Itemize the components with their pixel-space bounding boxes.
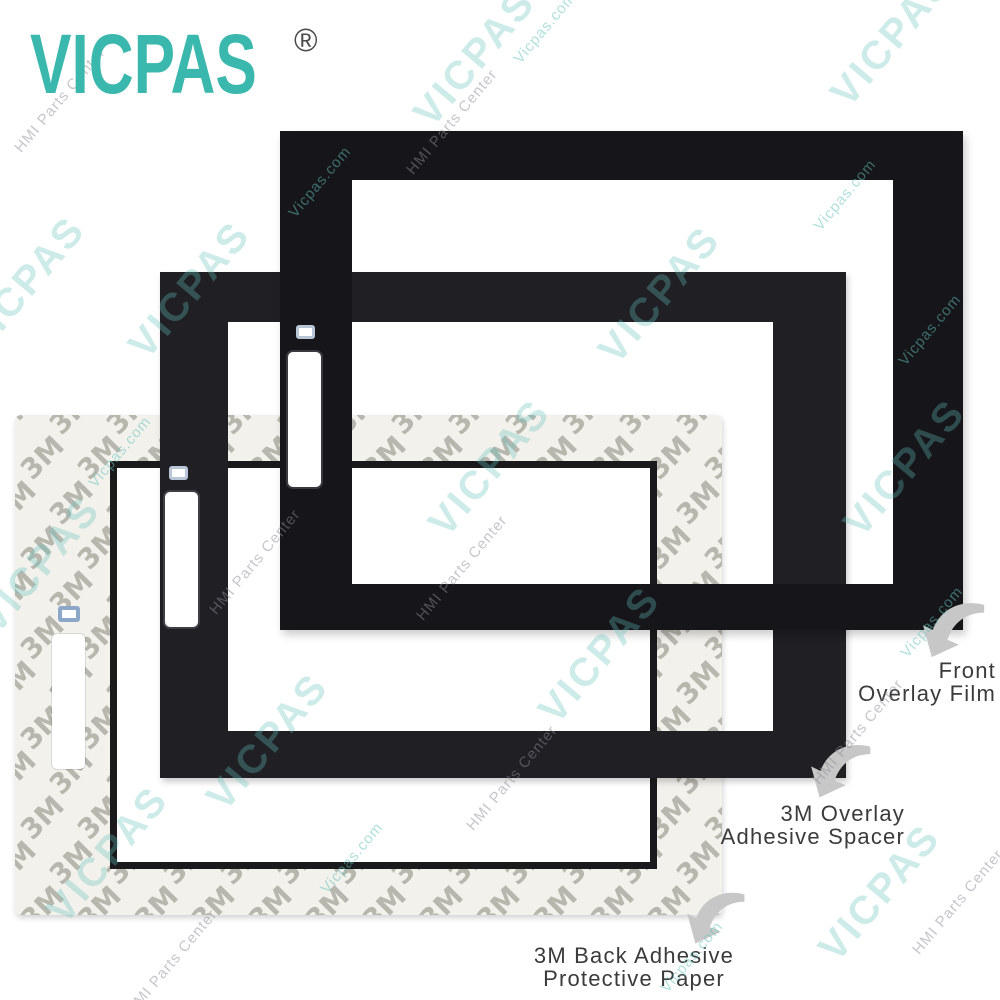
3m-pattern-glyph: 3M [16, 431, 69, 484]
protective-paper-label-line2: Protective Paper [534, 967, 734, 990]
paper-led-window-cutout-icon [58, 606, 80, 622]
front-overlay-film-layer [280, 131, 963, 630]
watermark-brand-text: VICPAS [0, 208, 95, 363]
protective-paper-label-line1: 3M Back Adhesive [534, 944, 734, 967]
film-led-window-cutout-icon [296, 325, 315, 339]
protective-paper-label: 3M Back Adhesive Protective Paper [534, 944, 734, 990]
3m-pattern-glyph: 3M [16, 521, 69, 574]
front-film-arrow-icon [922, 599, 992, 663]
adhesive-spacer-label: 3M Overlay Adhesive Spacer [721, 802, 905, 848]
watermark-brand-text: VICPAS [405, 0, 545, 135]
adhesive-spacer-label-line1: 3M Overlay [721, 802, 905, 825]
paper-function-slot-cutout [52, 634, 85, 769]
front-film-label-line2: Overlay Film [858, 682, 996, 705]
3m-pattern-glyph: 3M [672, 836, 722, 889]
spacer-led-window-cutout-icon [169, 466, 188, 480]
spacer-function-slot-cutout [165, 492, 198, 627]
film-function-slot-cutout [288, 352, 321, 487]
3m-pattern-glyph: 3M [16, 791, 69, 844]
front-film-label-line1: Front [858, 659, 996, 682]
watermark-site-text: Vicpas.com [510, 0, 579, 67]
watermark-center-text: HMI Parts Center [123, 906, 221, 1000]
vicpas-logo-text: VICPAS [30, 22, 257, 106]
3m-pattern-glyph: 3M [45, 476, 98, 529]
watermark-center-text: HMI Parts Center [909, 846, 1000, 958]
3m-pattern-glyph: 3M [45, 836, 98, 889]
3m-pattern-glyph: 3M [15, 415, 41, 440]
product-image-canvas: VICPAS ® 3M3M3M3M3M3M3M3M3M3M3M3M3M3M3M3… [0, 0, 1000, 1000]
registered-trademark-symbol: ® [294, 22, 318, 59]
watermark-brand-text: VICPAS [822, 0, 962, 115]
vicpas-logo: VICPAS ® [30, 22, 337, 106]
adhesive-spacer-label-line2: Adhesive Spacer [721, 825, 905, 848]
front-film-label: Front Overlay Film [858, 659, 996, 705]
protective-paper-arrow-icon [686, 889, 752, 949]
adhesive-spacer-arrow-icon [810, 741, 878, 803]
